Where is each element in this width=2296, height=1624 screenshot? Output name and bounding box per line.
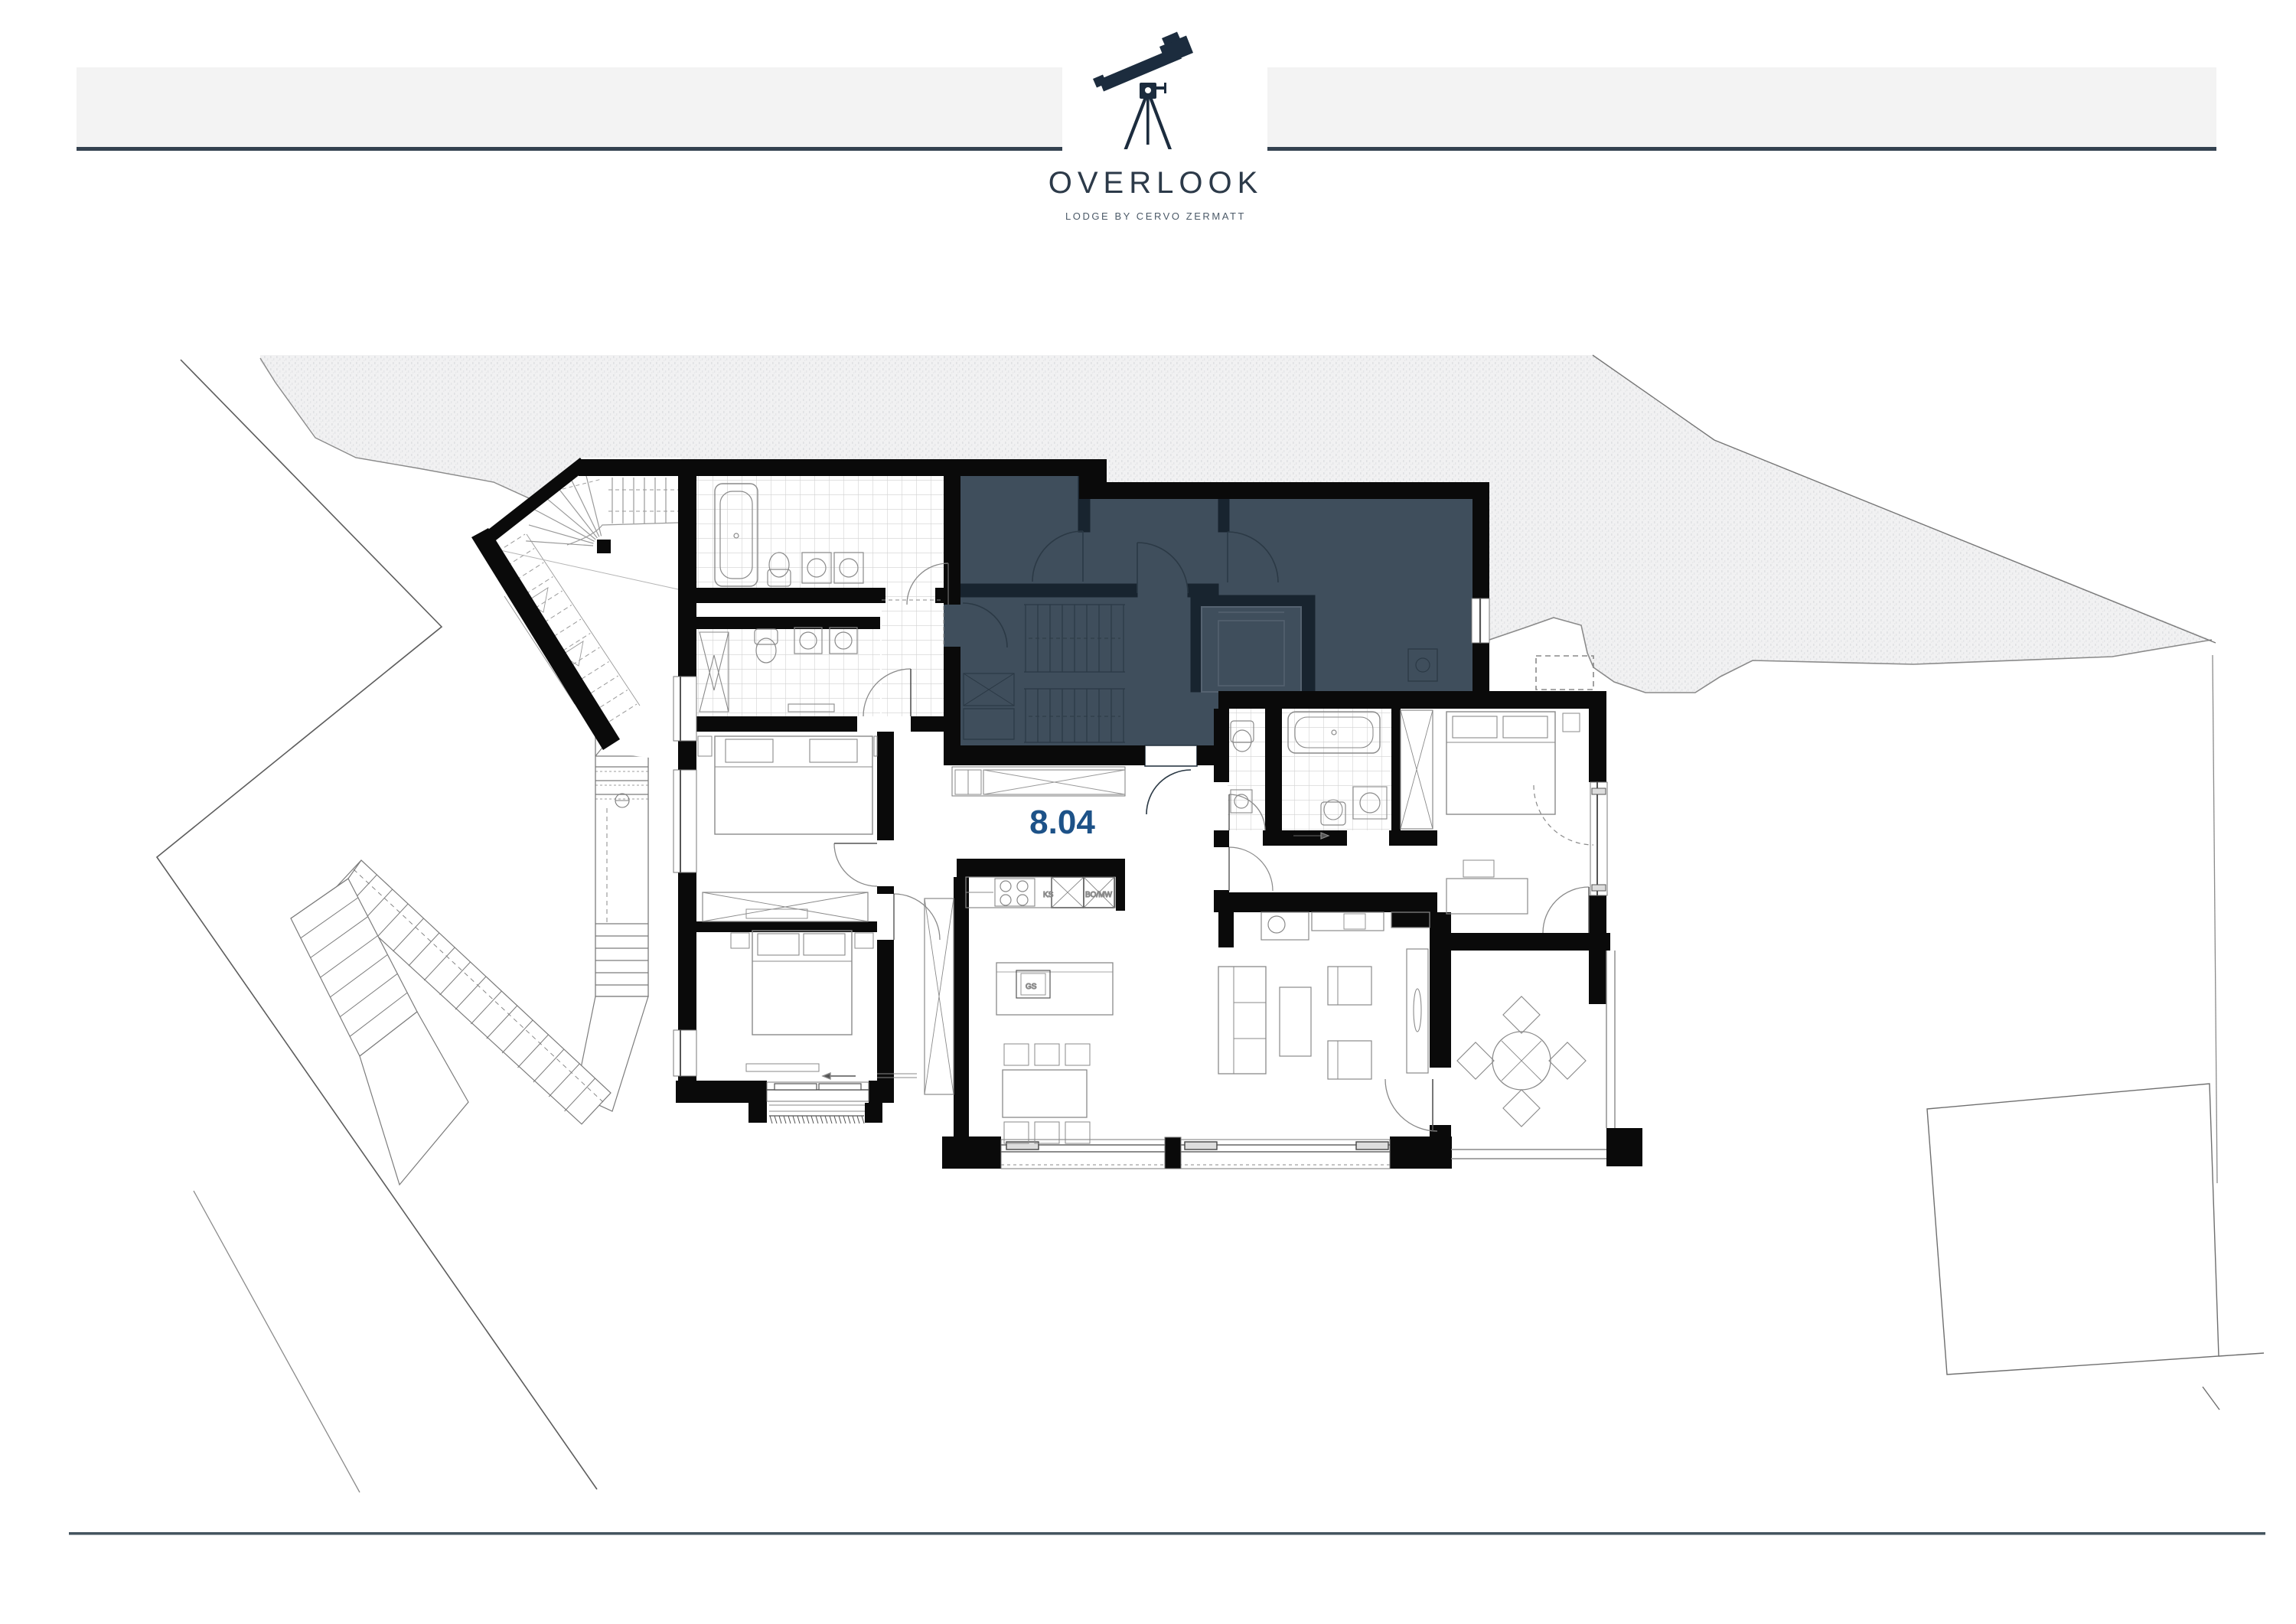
svg-text:OVERLOOK: OVERLOOK — [1049, 166, 1264, 200]
svg-text:GS: GS — [1026, 983, 1037, 991]
svg-text:LODGE BY CERVO ZERMATT: LODGE BY CERVO ZERMATT — [1065, 210, 1246, 222]
svg-text:KS: KS — [1043, 891, 1054, 899]
svg-text:BO/MW: BO/MW — [1085, 891, 1113, 899]
svg-text:8.04: 8.04 — [1029, 804, 1095, 841]
